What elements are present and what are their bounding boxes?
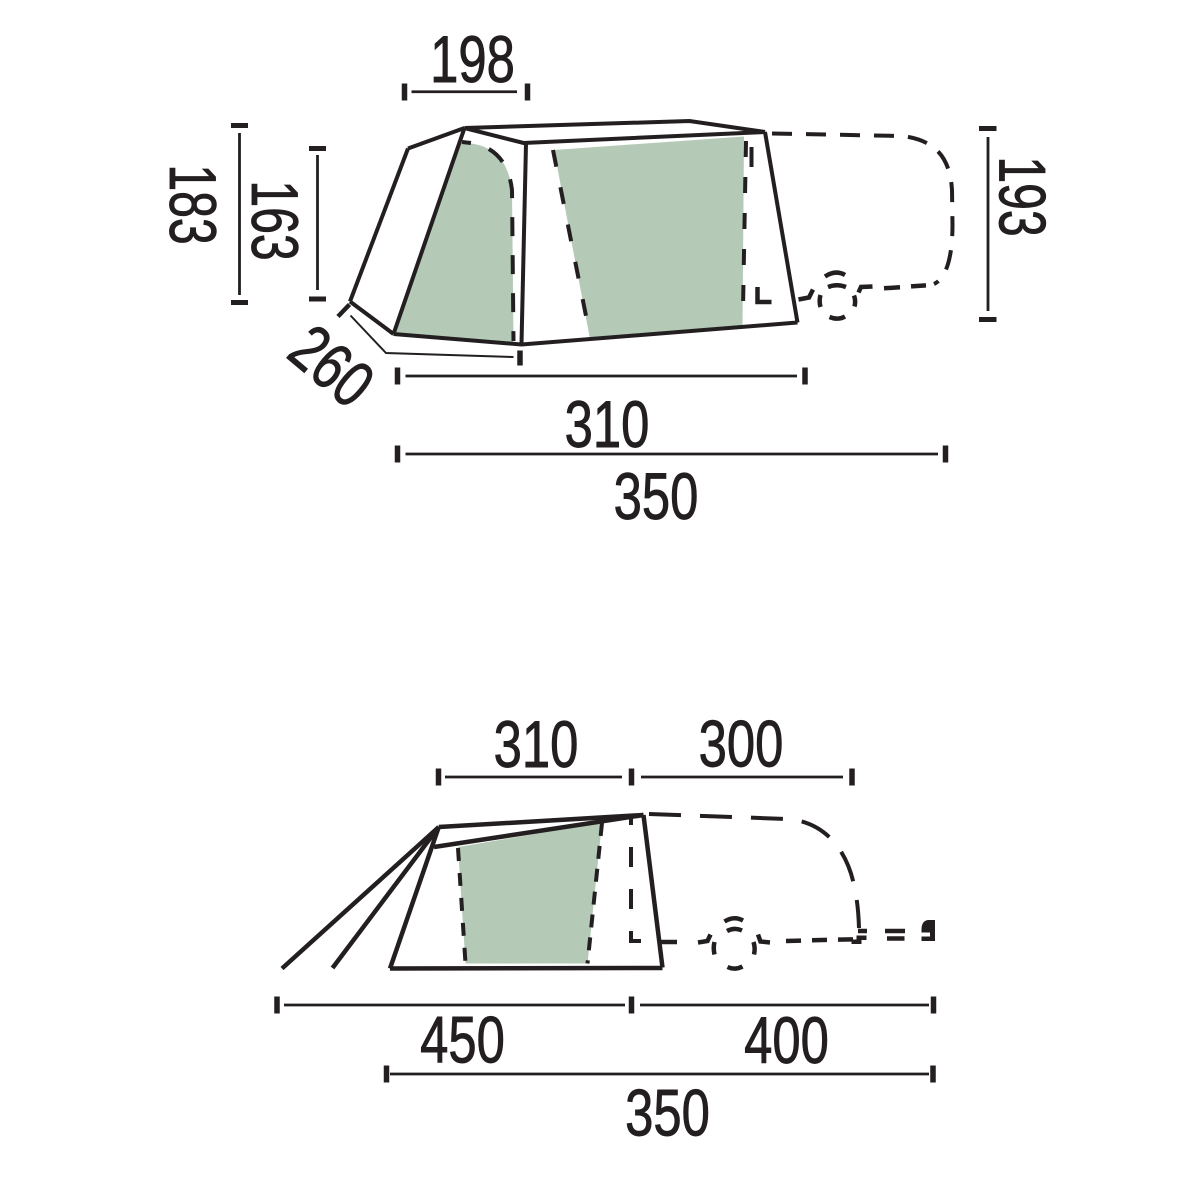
svg-text:310: 310	[494, 709, 579, 782]
svg-text:350: 350	[614, 461, 699, 534]
svg-text:300: 300	[699, 708, 784, 781]
svg-text:310: 310	[565, 389, 650, 462]
svg-text:350: 350	[625, 1077, 710, 1150]
svg-text:193: 193	[985, 156, 1058, 236]
svg-text:450: 450	[420, 1004, 505, 1077]
svg-text:183: 183	[155, 164, 228, 244]
svg-text:260: 260	[275, 312, 387, 422]
svg-text:163: 163	[237, 180, 310, 260]
svg-text:400: 400	[744, 1005, 829, 1078]
svg-text:198: 198	[430, 24, 515, 97]
